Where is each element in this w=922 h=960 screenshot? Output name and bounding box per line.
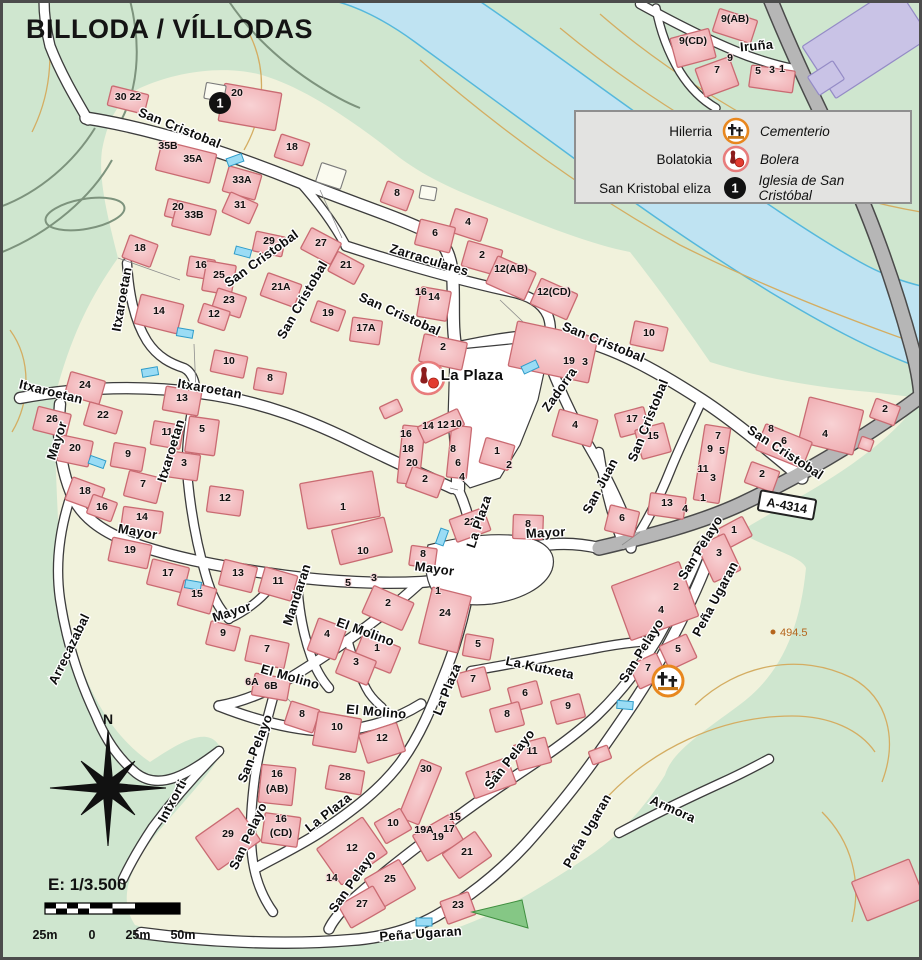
building-label: 5: [475, 638, 481, 650]
building-label: 9: [125, 448, 131, 460]
building-label: 19: [563, 355, 575, 367]
building-label: 30: [420, 763, 432, 775]
building-label: 5: [675, 643, 681, 655]
building-label: 15: [191, 588, 203, 600]
building-label: 9: [727, 52, 733, 64]
building-label: 1: [435, 585, 441, 597]
building-label: 10: [643, 327, 655, 339]
building-label: 21: [340, 259, 352, 271]
building-label: 9: [707, 443, 713, 455]
building-label: 11: [697, 463, 708, 475]
building-label: (AB): [266, 783, 288, 795]
building-label: 12: [208, 308, 220, 320]
bowling-icon: [721, 145, 751, 173]
building-label: 14: [153, 305, 165, 317]
building-label: 7: [264, 643, 270, 655]
cemetery-icon: [721, 117, 751, 145]
building-label: 9: [565, 700, 571, 712]
pool: [617, 700, 634, 709]
legend-church-badge: 1: [731, 181, 738, 196]
building-label: 2: [506, 459, 512, 471]
building-label: 21: [461, 846, 473, 858]
building-label: 6B: [264, 680, 278, 692]
building-label: 4: [572, 419, 578, 431]
building-label: 1: [340, 501, 346, 513]
street-label: Mayor: [526, 524, 567, 541]
building-label: 14: [136, 511, 148, 523]
building: [419, 185, 437, 201]
building-label: 10: [331, 721, 343, 733]
building-label: 8: [267, 372, 273, 384]
building-label: 12: [437, 419, 449, 431]
building-label: 3: [353, 656, 359, 668]
building-label: 19A: [414, 824, 434, 836]
building-label: 4: [324, 628, 330, 640]
map-page: 1 30 22201835B35A33A2033B318182927211625…: [0, 0, 922, 960]
legend-row-bolera: Bolatokia Bolera: [586, 145, 900, 173]
building-label: 13: [176, 392, 188, 404]
building-label: 16: [271, 768, 283, 780]
building-label: 3: [716, 547, 722, 559]
compass-north-label: N: [103, 711, 113, 727]
building-label: 7: [714, 64, 720, 76]
building-label: 16: [275, 813, 287, 825]
building-label: 9: [220, 627, 226, 639]
building-label: 18: [134, 242, 146, 254]
svg-text:1: 1: [216, 96, 223, 111]
church-marker: 1: [720, 176, 750, 200]
building-label: 20: [172, 201, 184, 213]
building-label: 5: [719, 445, 725, 457]
building-label: 16: [415, 286, 427, 298]
building-label: 5: [345, 577, 351, 589]
building-label: 7: [645, 662, 651, 674]
building-label: 24: [439, 607, 451, 619]
building-label: 27: [356, 898, 368, 910]
page-title: BILLODA / VÍLLODAS: [26, 14, 313, 45]
building-label: 7: [140, 478, 146, 490]
building-label: 20: [231, 87, 243, 99]
scale-tick: 25m: [125, 928, 150, 942]
street-label: Iruña: [739, 37, 774, 55]
building-label: 4: [465, 216, 471, 228]
building-label: 18: [79, 485, 91, 497]
building-label: 14: [428, 291, 440, 303]
building-label: 30 22: [115, 91, 141, 103]
building-label: 16: [96, 501, 108, 513]
building-label: 4: [658, 604, 664, 616]
building-label: 25: [384, 873, 396, 885]
building-label: 6: [522, 687, 528, 699]
building-label: 1: [731, 524, 737, 536]
building-label: 8: [504, 708, 510, 720]
building-label: 23: [452, 899, 464, 911]
building-label: 2: [759, 468, 765, 480]
building-label: 3: [710, 472, 716, 484]
building-label: 9(CD): [679, 35, 707, 47]
bowling-icon: [412, 362, 444, 394]
building-label: 31: [234, 199, 246, 211]
building-label: 13: [661, 497, 673, 509]
building-label: 6: [432, 227, 438, 239]
scale-tick: 0: [89, 928, 96, 942]
building-label: 12: [346, 842, 358, 854]
building-label: 35B: [158, 140, 178, 152]
building-label: 1: [779, 63, 785, 75]
building-label: 3: [769, 64, 775, 76]
building-label: 10: [357, 545, 369, 557]
building-label: 14: [422, 420, 434, 432]
church-marker: 1: [209, 92, 231, 114]
legend-basque-label: Hilerria: [586, 124, 712, 139]
building-label: 7: [470, 673, 476, 685]
building-label: 9(AB): [721, 13, 749, 25]
building-label: 23: [223, 294, 235, 306]
building-label: 28: [339, 771, 351, 783]
building-label: 18: [286, 141, 298, 153]
building-label: 15: [449, 811, 461, 823]
building-label: 17: [443, 823, 455, 835]
building-label: (CD): [270, 827, 292, 839]
building-label: 12: [219, 492, 231, 504]
building-label: 16: [400, 428, 412, 440]
building-label: 12(CD): [537, 286, 571, 298]
building-label: 4: [682, 503, 688, 515]
spot-elevation-label: 494.5: [780, 627, 808, 639]
building-label: 1: [700, 492, 706, 504]
building-label: 19: [322, 307, 334, 319]
legend: Hilerria Cementerio Bolatokia B: [574, 110, 912, 204]
legend-basque-label: Bolatokia: [586, 152, 712, 167]
street-label: La Plaza: [441, 367, 504, 384]
building-label: 2: [479, 249, 485, 261]
building-label: 7: [715, 430, 721, 442]
building-label: 6A: [245, 676, 259, 688]
building-label: 2: [882, 403, 888, 415]
building-label: 19: [124, 544, 136, 556]
building-label: 33A: [232, 174, 252, 186]
legend-spanish-label: Cementerio: [760, 124, 830, 139]
building-label: 18: [402, 443, 414, 455]
building-label: 8: [394, 187, 400, 199]
building-label: 20: [406, 457, 418, 469]
building-label: 14: [326, 872, 338, 884]
building-label: 4: [822, 428, 828, 440]
building-label: 35A: [183, 153, 203, 165]
building-label: 6: [619, 512, 625, 524]
building-label: 2: [440, 341, 446, 353]
building-label: 4: [459, 471, 465, 483]
building-label: 3: [181, 457, 187, 469]
building-label: 12(AB): [494, 263, 528, 275]
building-label: 13: [232, 567, 244, 579]
building-label: 10: [387, 817, 399, 829]
scale-ratio: E: 1/3.500: [48, 875, 126, 894]
building-label: 10: [450, 418, 462, 430]
building-label: 2: [385, 597, 391, 609]
building-label: 33B: [184, 209, 204, 221]
legend-row-church: San Kristobal eliza 1 Iglesia de San Cri…: [586, 173, 900, 203]
building-label: 29: [222, 828, 234, 840]
building-label: 2: [422, 473, 428, 485]
building-label: 3: [582, 356, 588, 368]
building-label: 8: [450, 443, 456, 455]
building-label: 11: [272, 575, 283, 587]
building-label: 5: [755, 65, 761, 77]
building-label: 17A: [356, 322, 376, 334]
building-label: 16: [195, 259, 207, 271]
building-label: 8: [299, 708, 305, 720]
building-label: 12: [376, 732, 388, 744]
building-label: 1: [494, 445, 500, 457]
scale-tick: 25m: [32, 928, 57, 942]
legend-spanish-label: Bolera: [760, 152, 799, 167]
building-label: 20: [69, 442, 81, 454]
building-label: 24: [79, 379, 91, 391]
scale-tick: 50m: [170, 928, 195, 942]
legend-spanish-label: Iglesia de San Cristóbal: [759, 173, 900, 203]
building-label: 3: [371, 572, 377, 584]
building-label: 17: [626, 413, 638, 425]
building-label: 17: [162, 567, 174, 579]
legend-basque-label: San Kristobal eliza: [586, 181, 711, 196]
building-label: 2: [673, 581, 679, 593]
building-label: 27: [315, 237, 327, 249]
building-label: 21A: [271, 281, 291, 293]
cemetery-icon: [653, 666, 683, 696]
legend-row-cemetery: Hilerria Cementerio: [586, 117, 900, 145]
building-label: 5: [199, 423, 205, 435]
building-label: 6: [455, 457, 461, 469]
building-label: 10: [223, 355, 235, 367]
building-label: 22: [97, 409, 109, 421]
